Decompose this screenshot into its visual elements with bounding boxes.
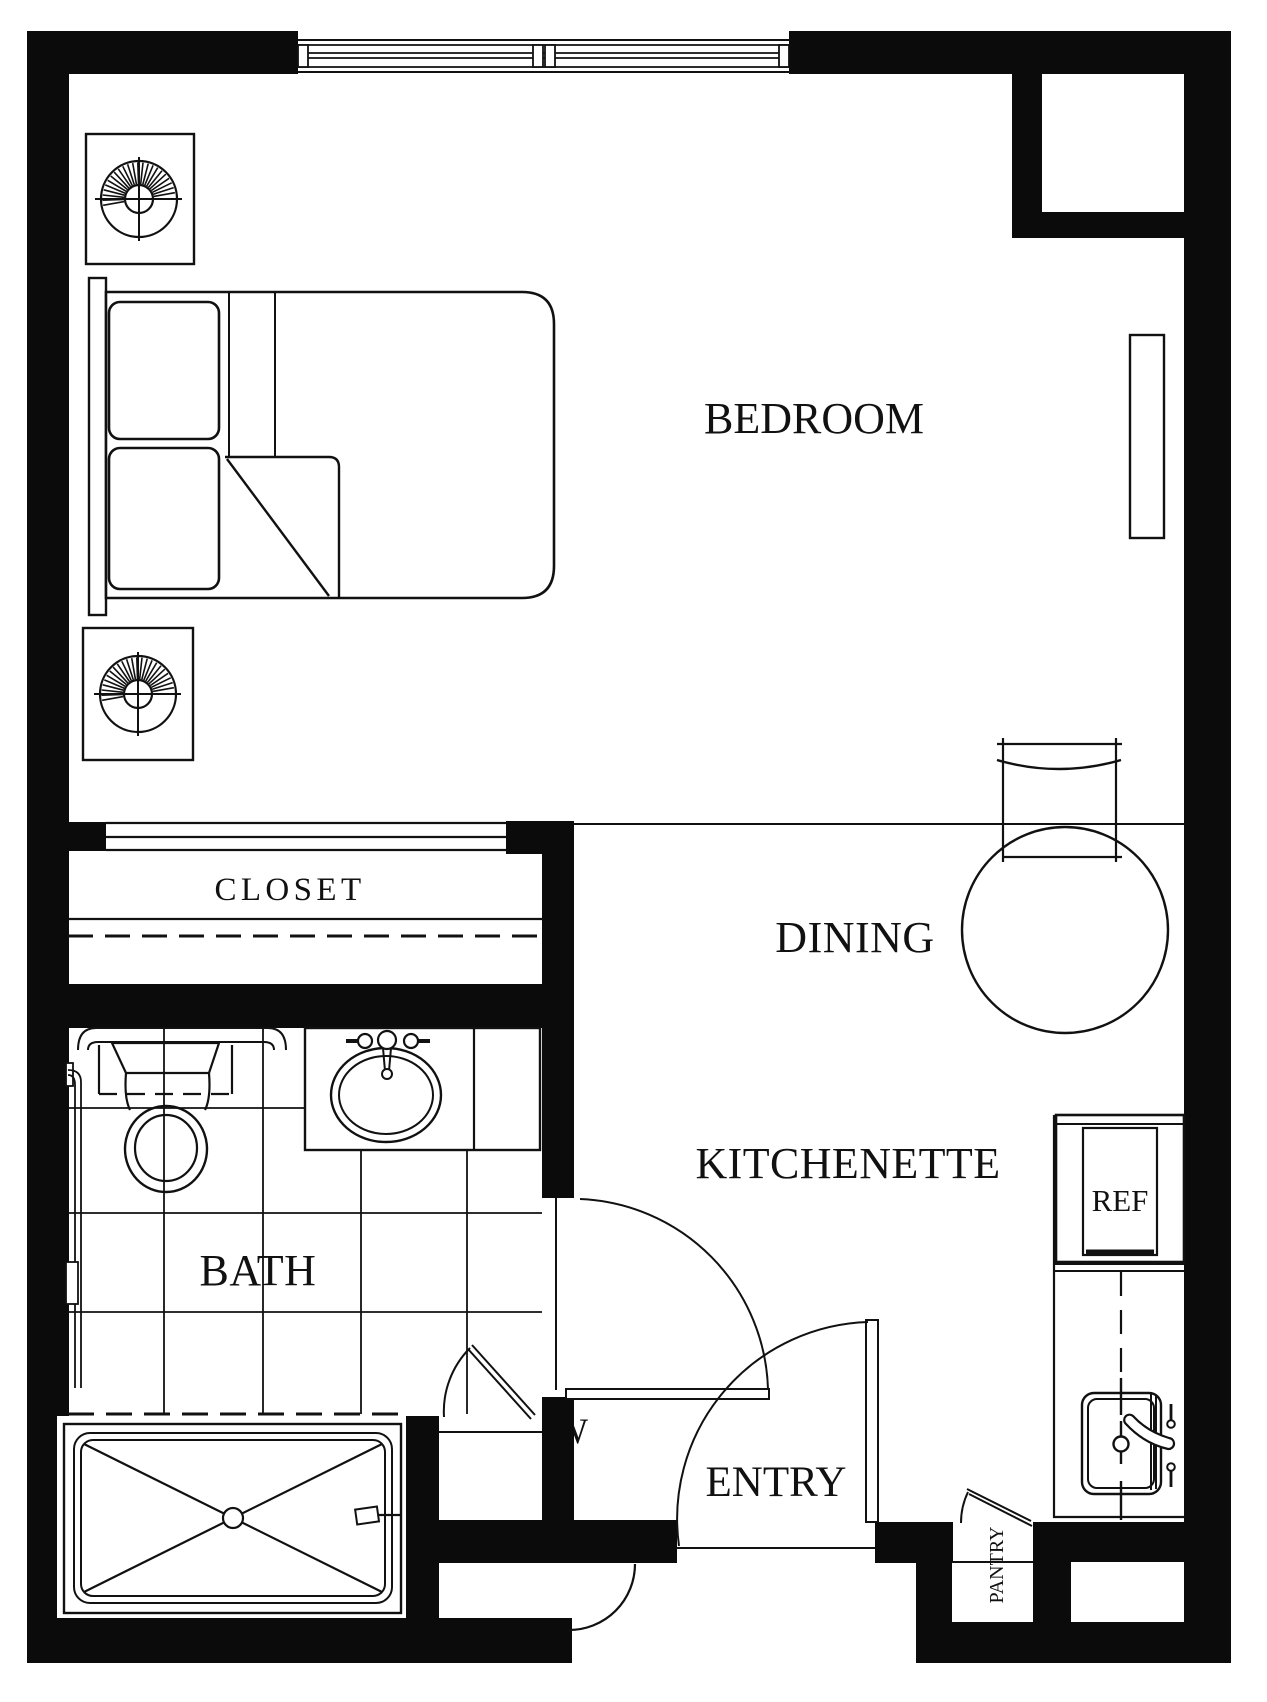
svg-text:KITCHENETTE: KITCHENETTE: [696, 1139, 1001, 1188]
svg-text:ENTRY: ENTRY: [706, 1459, 847, 1506]
svg-text:PANTRY: PANTRY: [986, 1526, 1008, 1603]
svg-text:CLOSET: CLOSET: [214, 872, 365, 908]
svg-text:BATH: BATH: [200, 1246, 317, 1295]
svg-text:DINING: DINING: [775, 913, 934, 962]
svg-text:REF: REF: [1092, 1183, 1149, 1218]
svg-text:BEDROOM: BEDROOM: [704, 394, 924, 443]
